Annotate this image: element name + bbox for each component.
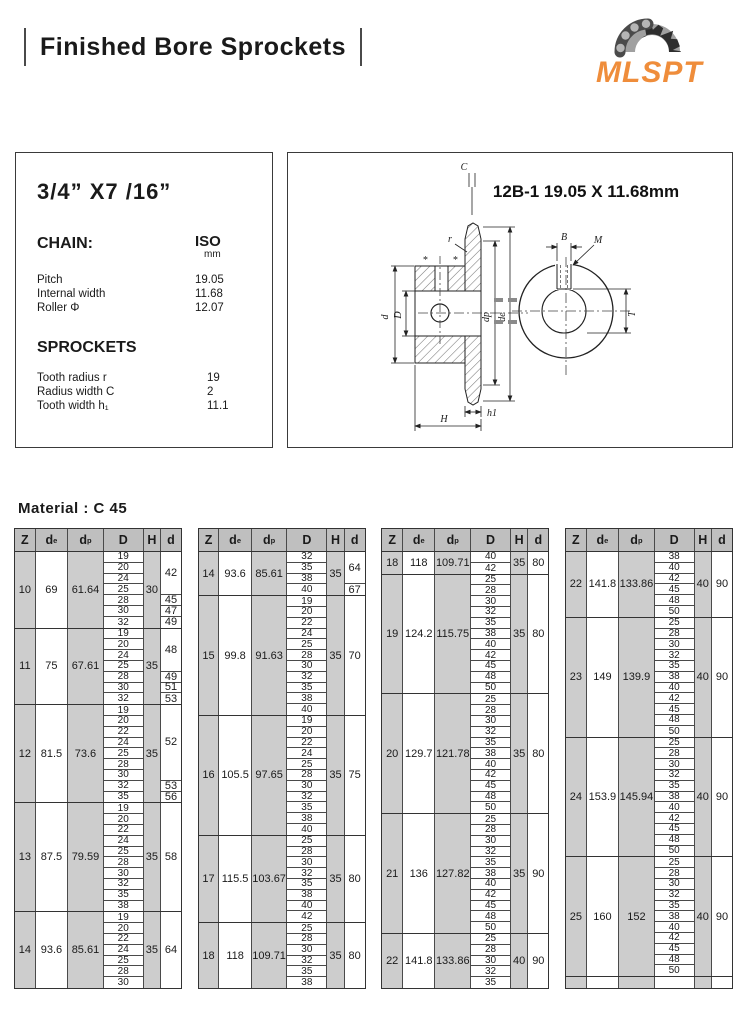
de-cell: 87.5 xyxy=(36,803,68,911)
column-header: de xyxy=(219,529,251,551)
bore-value: 38 xyxy=(655,911,694,922)
d-value: 56 xyxy=(161,792,181,803)
d-value: 49 xyxy=(161,617,181,628)
d-cell: 90 xyxy=(528,934,548,988)
d-value: 58 xyxy=(161,803,181,911)
h-cell: 40 xyxy=(695,552,712,617)
bore-value: 35 xyxy=(471,977,510,988)
d-value: 52 xyxy=(161,705,181,781)
bore-value: 42 xyxy=(287,911,326,922)
column-header: de xyxy=(403,529,435,551)
dp-cell: 79.59 xyxy=(68,803,104,911)
material-label: Material : C 45 xyxy=(18,500,127,517)
bore-value: 25 xyxy=(471,575,510,586)
d-cell: 64 xyxy=(161,912,181,988)
dp-cell: 85.61 xyxy=(252,552,288,595)
bore-value: 28 xyxy=(471,825,510,836)
h-cell: 35 xyxy=(144,803,161,911)
bore-value: 30 xyxy=(287,945,326,956)
bore-value: 42 xyxy=(471,890,510,901)
bore-value: 28 xyxy=(471,945,510,956)
d-value: 64 xyxy=(161,912,181,988)
bore-value: 22 xyxy=(104,934,143,945)
bore-value: 32 xyxy=(287,956,326,967)
sprocket-table-1: ZdedpDHd106961.6419202425283032304245474… xyxy=(14,528,182,989)
dp-cell: 61.64 xyxy=(68,552,104,628)
h-cell: 35 xyxy=(327,596,344,715)
bore-value: 30 xyxy=(104,683,143,694)
de-cell: 99.8 xyxy=(219,596,251,715)
bore-value: 20 xyxy=(287,607,326,618)
bore-value: 35 xyxy=(287,966,326,977)
bore-value: 32 xyxy=(104,617,143,628)
h-cell: 35 xyxy=(327,716,344,835)
bore-value: 40 xyxy=(655,563,694,574)
bore-value: 20 xyxy=(104,563,143,574)
bore-value: 38 xyxy=(287,813,326,824)
bore-value: 19 xyxy=(104,629,143,640)
bore-value: 25 xyxy=(287,759,326,770)
bore-options-cell: 2528303235384042 xyxy=(287,836,327,922)
bore-value: 38 xyxy=(287,977,326,988)
z-cell: 13 xyxy=(15,803,36,911)
d-value: 70 xyxy=(345,596,365,715)
chain-header: CHAIN: ISO mm xyxy=(37,235,272,261)
bore-value: 19 xyxy=(287,716,326,727)
h-cell: 40 xyxy=(695,618,712,737)
table-row: 22141.8133.863840424548504090 xyxy=(566,552,732,617)
de-cell xyxy=(587,977,619,988)
bore-value: 38 xyxy=(655,792,694,803)
bore-value: 35 xyxy=(287,879,326,890)
dp-cell: 97.65 xyxy=(252,716,288,835)
page-header: Finished Bore Sprockets xyxy=(24,28,362,66)
bore-value: 48 xyxy=(471,911,510,922)
spec-row-radius-width: Radius width C 2 xyxy=(37,385,272,399)
table-header-row: ZdedpDHd xyxy=(382,529,548,552)
dp-cell: 121.78 xyxy=(435,694,471,813)
h-cell: 35 xyxy=(511,575,528,694)
d-cell: 80 xyxy=(345,923,365,988)
bore-options-cell: 2528303235384042454850 xyxy=(655,738,695,857)
bore-value: 42 xyxy=(655,933,694,944)
de-cell: 105.5 xyxy=(219,716,251,835)
bore-value: 19 xyxy=(104,705,143,716)
bore-value: 25 xyxy=(655,618,694,629)
table-row: 1387.579.59192022242528303235383558 xyxy=(15,802,181,911)
bore-value: 19 xyxy=(104,552,143,563)
table-row: 2516015225283032353840424548504090 xyxy=(566,856,732,976)
d-cell: 42454749 xyxy=(161,552,181,628)
bore-value: 40 xyxy=(655,802,694,813)
bore-value: 35 xyxy=(655,781,694,792)
spec-value: 19 xyxy=(207,371,220,385)
h-cell: 30 xyxy=(144,552,161,628)
spec-row-internal-width: Internal width 11.68 xyxy=(37,287,272,301)
table-row: 24153.9145.9425283032353840424548504090 xyxy=(566,737,732,857)
bore-value: 30 xyxy=(471,956,510,967)
bore-options-cell: 2528303235384042454850 xyxy=(471,694,511,813)
d-cell: 90 xyxy=(712,857,732,976)
bore-value: 35 xyxy=(287,683,326,694)
table-row: 21136127.8225283032353840424548503590 xyxy=(382,813,548,933)
z-cell: 23 xyxy=(566,618,587,737)
bore-value: 35 xyxy=(104,792,143,803)
z-cell xyxy=(566,977,587,988)
bore-value: 32 xyxy=(287,552,326,563)
bore-value: 42 xyxy=(471,650,510,661)
bore-value: 40 xyxy=(287,901,326,912)
table-row: 1599.891.6319202224252830323538403570 xyxy=(199,595,365,715)
bore-value: 40 xyxy=(471,639,510,650)
bore-value: 50 xyxy=(655,606,694,617)
d-value: 90 xyxy=(712,738,732,857)
bore-options-cell: 252830323538 xyxy=(287,923,327,988)
dp-cell: 115.75 xyxy=(435,575,471,694)
bore-value: 25 xyxy=(471,814,510,825)
d-cell: 58 xyxy=(161,803,181,911)
d-value: 67 xyxy=(345,584,365,595)
bore-value: 50 xyxy=(471,683,510,694)
d-value: 53 xyxy=(161,693,181,704)
d-value: 90 xyxy=(712,857,732,976)
bore-options-cell: 2528303235384042454850 xyxy=(471,575,511,694)
dimension-tables: ZdedpDHd106961.6419202425283032304245474… xyxy=(14,528,733,989)
bore-options-cell: 19202224252830323538 xyxy=(104,803,144,911)
bore-value: 25 xyxy=(287,836,326,847)
bore-value: 25 xyxy=(471,934,510,945)
sprocket-table-3: ZdedpDHd18118109.714042358019124.2115.75… xyxy=(381,528,549,989)
bore-value: 30 xyxy=(471,836,510,847)
bore-value: 35 xyxy=(287,563,326,574)
de-cell: 115.5 xyxy=(219,836,251,922)
d-value: 64 xyxy=(345,552,365,584)
z-cell: 24 xyxy=(566,738,587,857)
bore-value: 22 xyxy=(104,825,143,836)
company-logo: MLSPT xyxy=(586,6,704,96)
de-cell: 69 xyxy=(36,552,68,628)
bore-value: 45 xyxy=(655,584,694,595)
bore-value: 24 xyxy=(104,650,143,661)
bore-value: 25 xyxy=(287,923,326,934)
d-value: 47 xyxy=(161,606,181,617)
bore-value: 45 xyxy=(471,901,510,912)
bore-value: 24 xyxy=(104,738,143,749)
bore-value: 20 xyxy=(104,814,143,825)
bore-value: 35 xyxy=(655,661,694,672)
bore-value: 25 xyxy=(104,661,143,672)
d-value: 90 xyxy=(712,552,732,617)
bore-value: 32 xyxy=(471,847,510,858)
d-cell: 90 xyxy=(712,552,732,617)
column-header: d xyxy=(345,529,365,551)
d-cell: 6467 xyxy=(345,552,365,595)
bore-value: 50 xyxy=(471,922,510,933)
bore-value: 45 xyxy=(655,944,694,955)
bore-value: 40 xyxy=(471,759,510,770)
spec-box: 3/4” X7 /16” CHAIN: ISO mm Pitch 19.05 I… xyxy=(15,152,273,448)
table-row: 18118109.712528303235383580 xyxy=(199,922,365,988)
bore-value: 28 xyxy=(471,705,510,716)
d-cell: 90 xyxy=(528,814,548,933)
z-cell: 12 xyxy=(15,705,36,802)
de-cell: 129.7 xyxy=(403,694,435,813)
dim-label-H: H xyxy=(439,414,448,425)
table-row: 17115.5103.6725283032353840423580 xyxy=(199,835,365,922)
drawing-title: 12B-1 19.05 X 11.68mm xyxy=(493,182,679,201)
bore-value: 30 xyxy=(287,781,326,792)
bore-value: 38 xyxy=(471,748,510,759)
page-title: Finished Bore Sprockets xyxy=(40,33,346,62)
size-title: 3/4” X7 /16” xyxy=(37,179,272,205)
d-cell: 525356 xyxy=(161,705,181,802)
bore-value: 28 xyxy=(471,585,510,596)
column-header: Z xyxy=(566,529,587,551)
bore-value: 25 xyxy=(104,956,143,967)
bore-value: 40 xyxy=(655,922,694,933)
z-cell: 22 xyxy=(382,934,403,988)
bore-value: 24 xyxy=(104,574,143,585)
de-cell: 141.8 xyxy=(587,552,619,617)
d-cell: 75 xyxy=(345,716,365,835)
bore-options-cell: 32353840 xyxy=(287,552,327,595)
spec-value: 2 xyxy=(207,385,213,399)
column-header: dp xyxy=(435,529,471,551)
bore-options-cell: 19202425283032 xyxy=(104,552,144,628)
bore-value: 28 xyxy=(287,847,326,858)
spec-row-tooth-radius: Tooth radius r 19 xyxy=(37,371,272,385)
bore-value: 25 xyxy=(104,584,143,595)
d-value: 90 xyxy=(528,934,548,988)
dp-cell: 133.86 xyxy=(619,552,655,617)
bore-value: 30 xyxy=(287,661,326,672)
column-header: H xyxy=(144,529,161,551)
bore-value: 25 xyxy=(104,748,143,759)
h-cell: 35 xyxy=(511,814,528,933)
bore-value: 35 xyxy=(471,618,510,629)
de-cell: 93.6 xyxy=(219,552,251,595)
column-header: H xyxy=(695,529,712,551)
bore-value: 30 xyxy=(655,759,694,770)
bore-options-cell: 1920222425283032353840 xyxy=(287,596,327,715)
z-cell: 16 xyxy=(199,716,220,835)
bore-value: 35 xyxy=(655,901,694,912)
d-value: 80 xyxy=(528,694,548,813)
bore-value: 19 xyxy=(287,596,326,607)
bore-value: 48 xyxy=(655,955,694,966)
bore-value: 35 xyxy=(287,802,326,813)
column-header: Z xyxy=(382,529,403,551)
d-value: 80 xyxy=(345,836,365,922)
bore-value: 25 xyxy=(287,639,326,650)
de-cell: 124.2 xyxy=(403,575,435,694)
column-header: de xyxy=(36,529,68,551)
bore-value: 28 xyxy=(104,759,143,770)
column-header: D xyxy=(104,529,144,551)
bore-value: 28 xyxy=(104,672,143,683)
table-row: 1281.573.619202224252830323535525356 xyxy=(15,704,181,802)
bore-value: 28 xyxy=(104,595,143,606)
d-value: 48 xyxy=(161,629,181,672)
bore-value: 28 xyxy=(104,966,143,977)
d-cell: 80 xyxy=(528,552,548,574)
bore-options-cell: 2528303235384042454850 xyxy=(471,814,511,933)
bore-value: 50 xyxy=(471,802,510,813)
bore-value xyxy=(655,977,694,988)
bore-value: 40 xyxy=(471,552,510,563)
dp-cell: 67.61 xyxy=(68,629,104,705)
d-value: 53 xyxy=(161,781,181,792)
d-value: 90 xyxy=(712,618,732,737)
spec-label: Radius width C xyxy=(37,385,195,399)
bore-value: 40 xyxy=(471,879,510,890)
table-row: 19124.2115.7525283032353840424548503580 xyxy=(382,574,548,694)
de-cell: 75 xyxy=(36,629,68,705)
bore-value: 28 xyxy=(287,770,326,781)
bore-value: 38 xyxy=(287,890,326,901)
bore-value: 42 xyxy=(471,563,510,574)
dim-label-h1: h1 xyxy=(487,408,497,419)
bore-options-cell: 1920222425283032353840 xyxy=(287,716,327,835)
table-row: 18118109.7140423580 xyxy=(382,552,548,574)
bore-value: 30 xyxy=(287,857,326,868)
bore-value: 19 xyxy=(104,803,143,814)
bore-value: 28 xyxy=(655,629,694,640)
spec-label: Pitch xyxy=(37,273,195,287)
h-cell: 35 xyxy=(144,912,161,988)
bore-value: 28 xyxy=(287,650,326,661)
bore-value: 35 xyxy=(471,857,510,868)
spec-row-pitch: Pitch 19.05 xyxy=(37,273,272,287)
bore-value: 38 xyxy=(104,901,143,912)
bore-value: 42 xyxy=(655,813,694,824)
bore-value: 40 xyxy=(287,824,326,835)
table-row: 16105.597.6519202224252830323538403575 xyxy=(199,715,365,835)
dp-cell: 145.94 xyxy=(619,738,655,857)
z-cell: 15 xyxy=(199,596,220,715)
title-right-rule xyxy=(360,28,362,66)
de-cell: 93.6 xyxy=(36,912,68,988)
table-header-row: ZdedpDHd xyxy=(15,529,181,552)
bore-value: 24 xyxy=(287,748,326,759)
bore-value: 38 xyxy=(655,672,694,683)
bore-value: 45 xyxy=(471,781,510,792)
dp-cell: 73.6 xyxy=(68,705,104,802)
bore-value: 28 xyxy=(655,868,694,879)
d-cell: 80 xyxy=(528,575,548,694)
sprockets-label: SPROCKETS xyxy=(37,339,272,357)
dp-cell: 109.71 xyxy=(435,552,471,574)
bore-options-cell: 4042 xyxy=(471,552,511,574)
bore-value: 38 xyxy=(471,868,510,879)
z-cell: 17 xyxy=(199,836,220,922)
catalog-page: Finished Bore Sprockets MLSPT 3/4” X7 /1… xyxy=(0,0,750,1036)
bore-value: 48 xyxy=(471,672,510,683)
technical-drawing-box: 12B-1 19.05 X 11.68mm * * d xyxy=(287,152,733,448)
table-row: 22141.8133.8625283032354090 xyxy=(382,933,548,988)
de-cell: 136 xyxy=(403,814,435,933)
bore-value: 24 xyxy=(104,945,143,956)
bore-value: 40 xyxy=(287,584,326,595)
d-value xyxy=(712,977,732,988)
column-header: dp xyxy=(68,529,104,551)
table-row: 1493.685.61192022242528303564 xyxy=(15,911,181,988)
bore-value: 19 xyxy=(104,912,143,923)
bore-value: 20 xyxy=(104,716,143,727)
dim-label-B: B xyxy=(561,232,567,243)
dim-label-M: M xyxy=(593,235,603,246)
z-cell: 10 xyxy=(15,552,36,628)
spec-label: Tooth width h₁ xyxy=(37,399,195,413)
bore-options-cell: 2528303235384042454850 xyxy=(655,618,695,737)
bore-value: 25 xyxy=(655,738,694,749)
z-cell: 25 xyxy=(566,857,587,976)
column-header: D xyxy=(287,529,327,551)
bore-value: 22 xyxy=(104,727,143,738)
column-header: dp xyxy=(619,529,655,551)
bore-value: 35 xyxy=(104,890,143,901)
dp-cell: 109.71 xyxy=(252,923,288,988)
spec-value: 19.05 xyxy=(195,273,224,287)
spec-row-roller: Roller Φ 12.07 xyxy=(37,301,272,315)
bore-value: 42 xyxy=(471,770,510,781)
sprocket-chain-icon xyxy=(616,20,681,53)
d-value: 80 xyxy=(528,552,548,574)
h-cell: 35 xyxy=(511,552,528,574)
bore-value: 25 xyxy=(471,694,510,705)
bore-value: 32 xyxy=(287,868,326,879)
spec-label: Internal width xyxy=(37,287,195,301)
d-cell: 70 xyxy=(345,596,365,715)
de-cell: 141.8 xyxy=(403,934,435,988)
dp-cell: 103.67 xyxy=(252,836,288,922)
bore-value: 22 xyxy=(287,738,326,749)
bore-value: 25 xyxy=(104,847,143,858)
bore-value: 30 xyxy=(471,596,510,607)
column-header: Z xyxy=(15,529,36,551)
column-header: D xyxy=(471,529,511,551)
bore-value: 28 xyxy=(287,934,326,945)
d-value: 51 xyxy=(161,683,181,694)
bore-value: 40 xyxy=(655,683,694,694)
h-cell xyxy=(695,977,712,988)
dp-cell: 127.82 xyxy=(435,814,471,933)
bore-value: 38 xyxy=(471,629,510,640)
spec-value: 12.07 xyxy=(195,301,224,315)
bore-value: 30 xyxy=(655,639,694,650)
bore-value: 48 xyxy=(655,835,694,846)
sprocket-drawing: 12B-1 19.05 X 11.68mm * * d xyxy=(288,153,731,446)
iso-title: ISO xyxy=(195,235,221,248)
h-cell: 35 xyxy=(511,694,528,813)
chain-label: CHAIN: xyxy=(37,235,195,261)
table-row: 20129.7121.7825283032353840424548503580 xyxy=(382,693,548,813)
bore-value: 38 xyxy=(287,693,326,704)
z-cell: 18 xyxy=(199,923,220,988)
bore-options-cell: 192022242528303235 xyxy=(104,705,144,802)
bore-value: 32 xyxy=(655,650,694,661)
bore-value: 32 xyxy=(287,792,326,803)
bore-value: 20 xyxy=(104,639,143,650)
bore-options-cell: 384042454850 xyxy=(655,552,695,617)
z-cell: 14 xyxy=(15,912,36,988)
sprocket-table-4: ZdedpDHd22141.8133.863840424548504090231… xyxy=(565,528,733,989)
bore-value: 50 xyxy=(655,846,694,857)
bore-options-cell: 2528303235384042454850 xyxy=(655,857,695,976)
bore-value: 30 xyxy=(655,879,694,890)
table-row: 117567.61192024252830323548495153 xyxy=(15,628,181,705)
sprocket-table-2: ZdedpDHd1493.685.61323538403564671599.89… xyxy=(198,528,366,989)
